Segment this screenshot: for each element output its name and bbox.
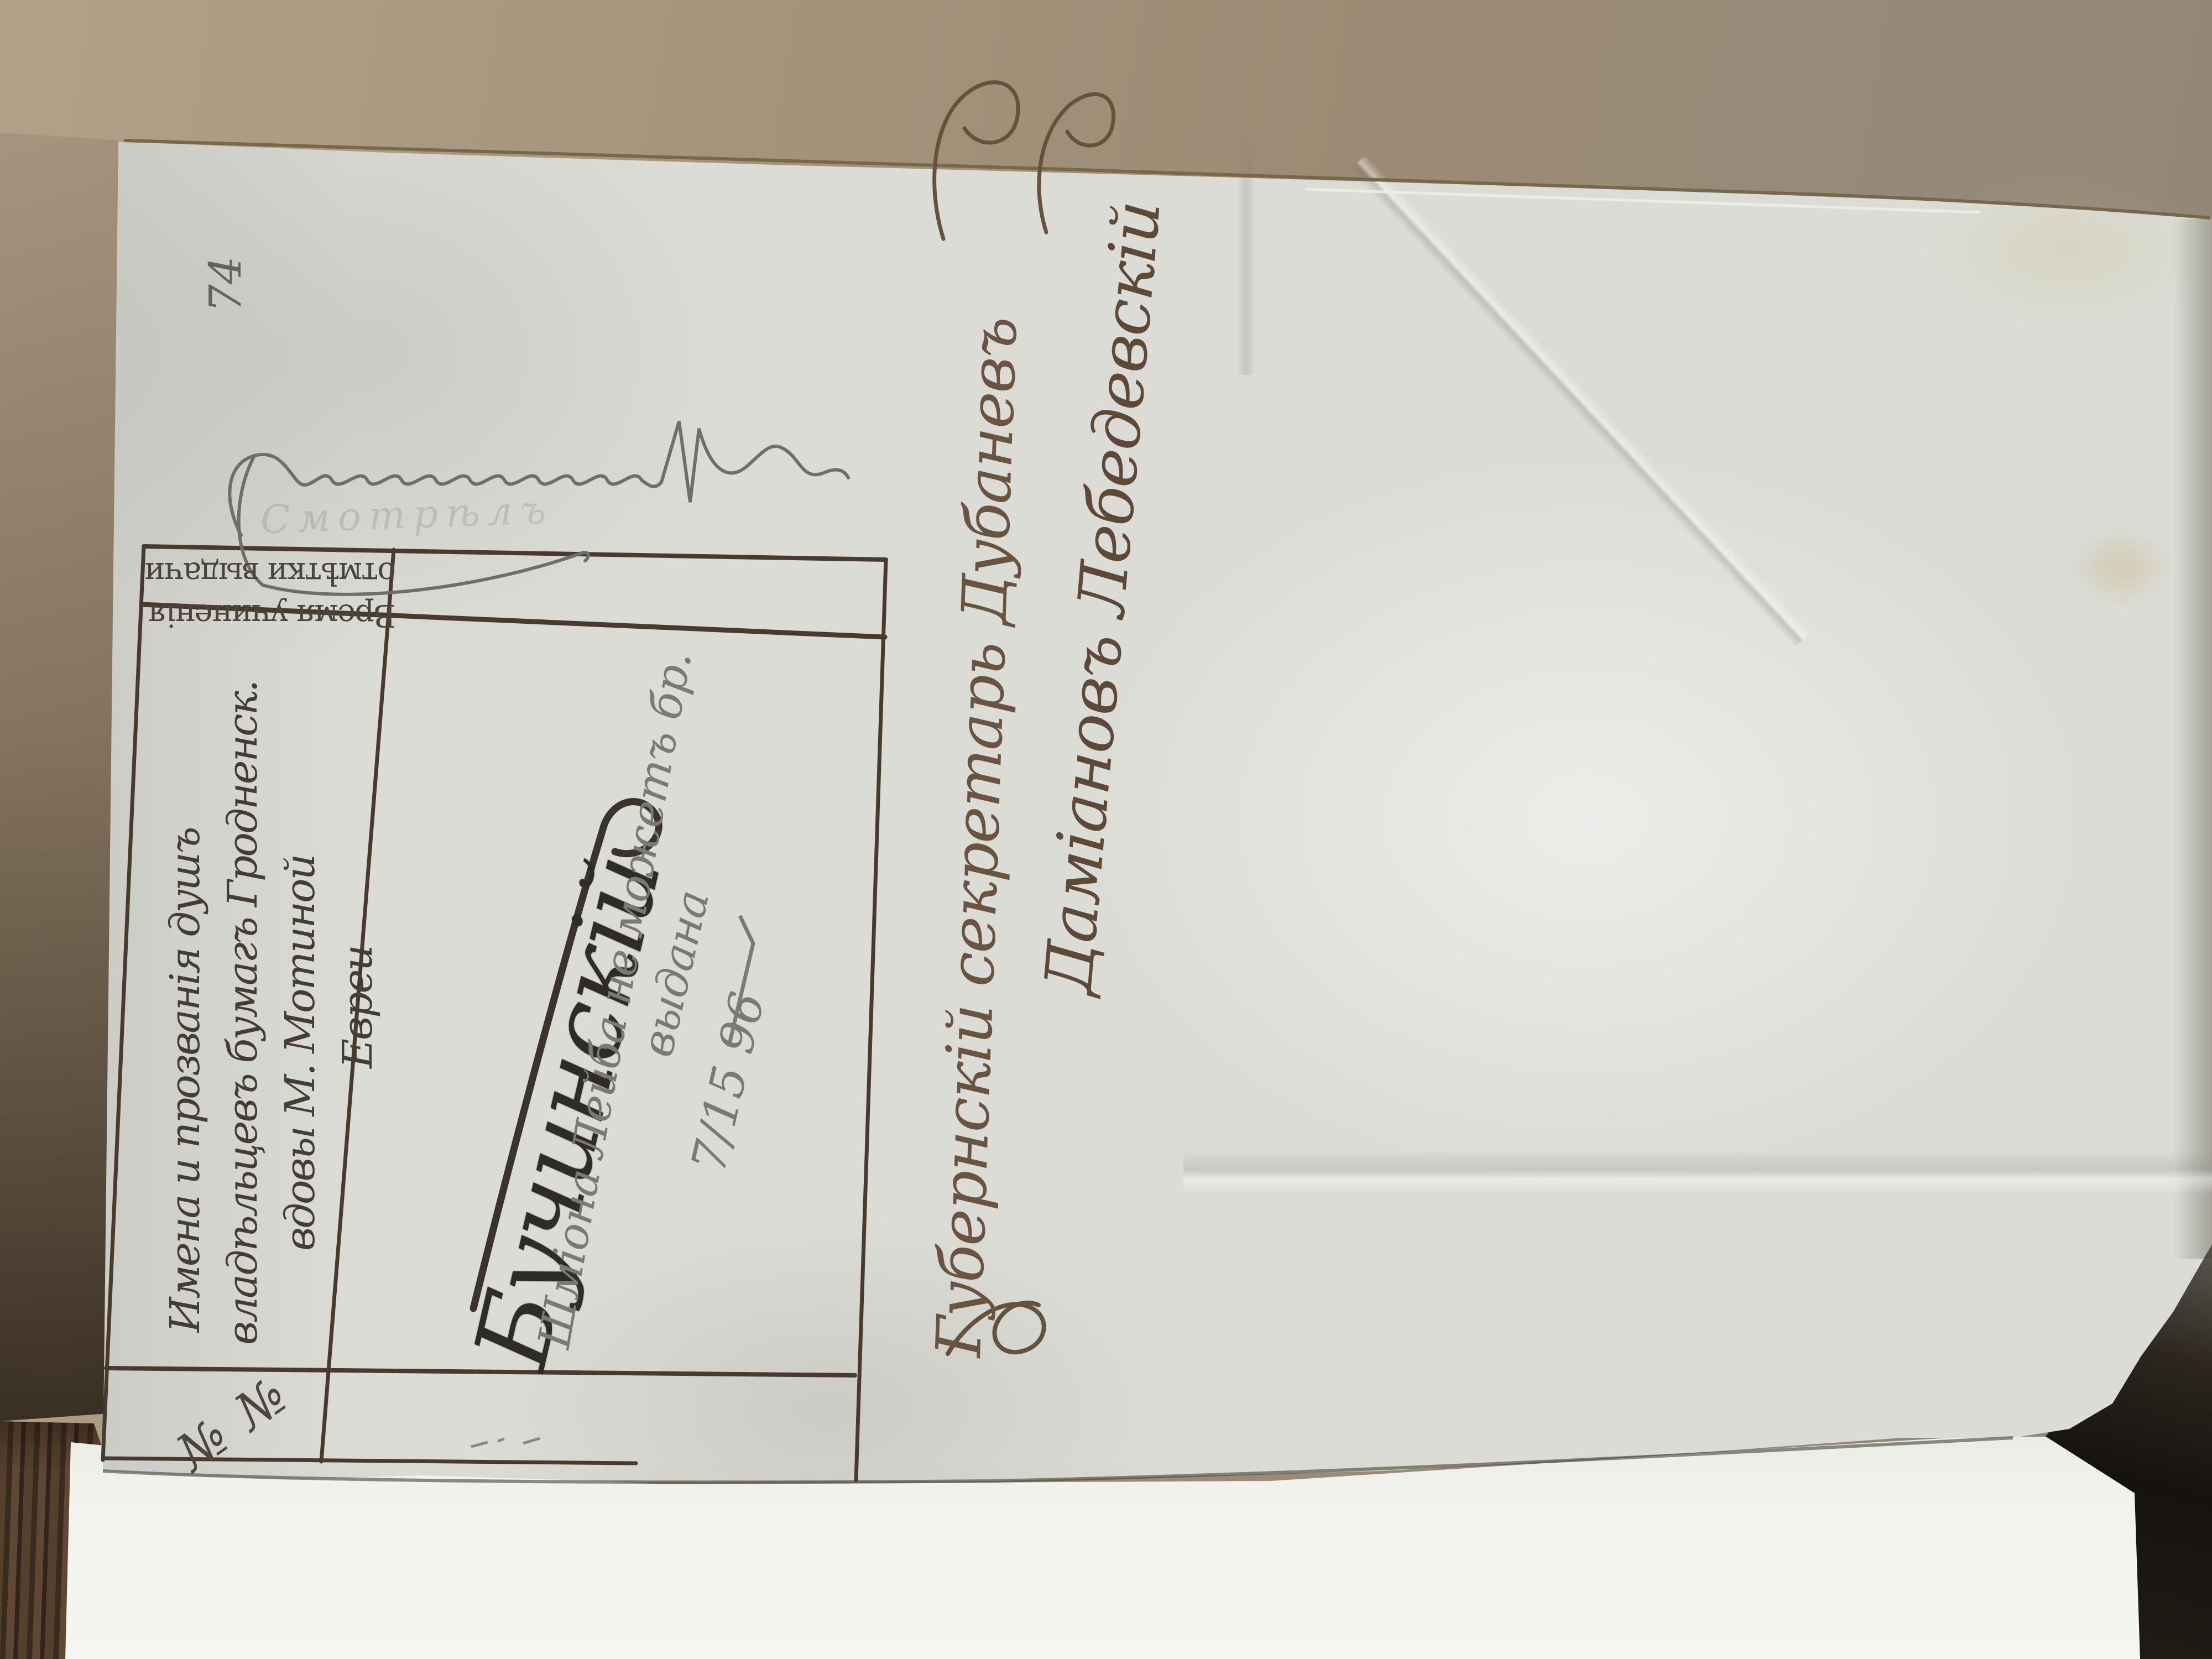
side-column-header-line2: отмѣтки выдачи	[158, 552, 396, 594]
no-column-header: № №	[169, 1368, 298, 1479]
photo-of-archival-ledger-page: 74 Смотрѣлъ Время учиненія отмѣтки выдач…	[0, 0, 2212, 1659]
entry-pencil-date: 7/15 96	[685, 988, 772, 1177]
main-header-line3: вдовы М. Мотиной	[280, 855, 321, 1251]
side-column-header: Время учиненія отмѣтки выдачи	[158, 554, 396, 636]
side-column-header-line1: Время учиненія	[158, 594, 396, 636]
main-header-line4: Евреи	[337, 946, 378, 1068]
main-header-line2: владѣльцевъ бумагъ Гродненск.	[222, 681, 263, 1345]
main-header-line1: Имена и прозванія душъ	[165, 828, 206, 1333]
